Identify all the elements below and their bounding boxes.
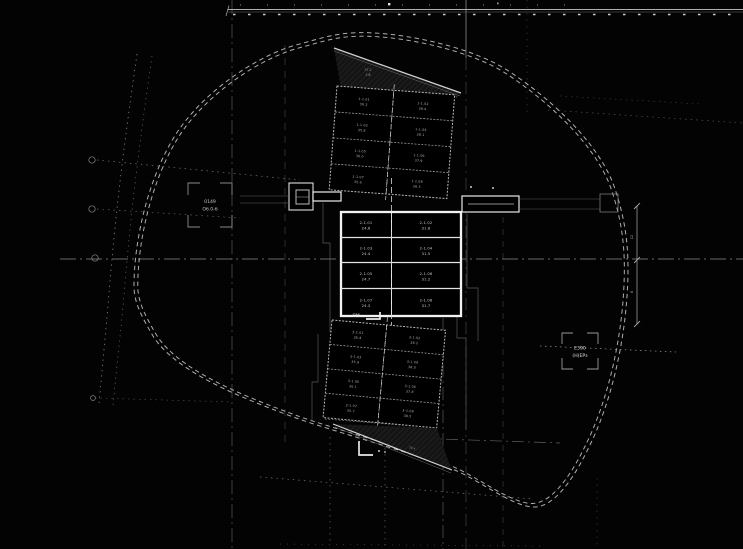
ramp-area-label: 37.2 xyxy=(364,68,371,72)
room-label: 35.7 xyxy=(347,409,355,414)
room-label: 24.6 xyxy=(362,226,371,230)
room-label: 1-1.03 xyxy=(356,123,368,128)
room-label: 37.9 xyxy=(415,158,423,163)
grid-bubble xyxy=(89,157,95,163)
room-label: 31.8 xyxy=(422,226,431,230)
room-label: 36.2 xyxy=(360,102,368,107)
room-label: 36.4 xyxy=(353,335,361,340)
room-label: 2-1.01 xyxy=(360,221,373,225)
room-label: 38.4 xyxy=(418,107,426,112)
upper-parking-block: 1-1.0136.21-1.0238.41-1.0335.81-1.0438.1… xyxy=(329,80,455,205)
room-label: 1-1.06 xyxy=(413,153,425,158)
room-label: 2-1.02 xyxy=(420,221,433,225)
room-label: 1-1.04 xyxy=(415,127,427,132)
lower-parking-block: 3-1.0136.43-1.0238.23-1.0335.93-1.0438.0… xyxy=(323,312,447,434)
room-label: 1-1.08 xyxy=(411,179,423,184)
site-plan-drawing: 12 8 0149 Об.0-б Е390 (Н)ЕРз 37.2 1:8 xyxy=(0,0,743,549)
room-label: 2-1.05 xyxy=(360,272,373,276)
top-dimension-strip xyxy=(226,3,743,17)
room-label: 38.5 xyxy=(403,414,411,419)
view-marker-left: 0149 Об.0-б xyxy=(188,183,232,227)
view-marker-text: Об.0-б xyxy=(202,207,217,213)
view-marker-text: 0149 xyxy=(204,199,216,205)
dimension-line-right: 12 8 xyxy=(630,203,640,327)
room-label: 2-1.06 xyxy=(420,272,433,276)
room-label: 36.1 xyxy=(349,384,357,389)
dimension-text-speck xyxy=(497,3,499,5)
room-label: 2-1.07 xyxy=(360,299,373,303)
view-marker-text: Е390 xyxy=(574,346,586,352)
room-label: 24.3 xyxy=(362,304,371,308)
grid-bubble xyxy=(89,206,95,212)
grid-bubble xyxy=(91,396,96,401)
dimension-value: 12 xyxy=(630,235,634,239)
room-label: 31.5 xyxy=(422,252,431,256)
link-corridor-west xyxy=(313,192,341,201)
room-label: 38.3 xyxy=(413,184,421,189)
view-marker-right: Е390 (Н)ЕРз xyxy=(562,333,598,369)
room-label: 35.8 xyxy=(358,128,366,133)
room-label: 1-1.05 xyxy=(354,149,366,154)
om-label: ОМ xyxy=(352,313,359,319)
room-label: 35.6 xyxy=(354,180,362,185)
room-label: 1-1.07 xyxy=(352,175,364,180)
room-label: 38.1 xyxy=(416,133,424,138)
room-label: 38.2 xyxy=(410,341,418,346)
room-label: 31.7 xyxy=(422,304,431,308)
room-label: 24.4 xyxy=(362,252,371,256)
room-label: 2-1.08 xyxy=(420,299,433,303)
room-label: 36.0 xyxy=(356,154,364,159)
room-label: 1-1.02 xyxy=(417,101,429,106)
room-label: 1-1.01 xyxy=(358,97,370,102)
room-label: 35.9 xyxy=(351,360,359,365)
room-label: 2-1.04 xyxy=(420,247,433,251)
cad-canvas: 12 8 0149 Об.0-б Е390 (Н)ЕРз 37.2 1:8 xyxy=(0,0,743,549)
grid-bubble-markers xyxy=(89,157,98,401)
view-marker-text: (Н)ЕРз xyxy=(572,353,588,359)
grid-bubble xyxy=(92,255,98,261)
corridor-east xyxy=(462,186,618,212)
dimension-text-speck xyxy=(388,3,390,5)
room-label: 2-1.03 xyxy=(360,247,373,251)
room-label: 24.7 xyxy=(362,277,371,281)
stair-core-west xyxy=(240,183,341,210)
room-label: 31.2 xyxy=(422,277,431,281)
room-label: 37.8 xyxy=(406,389,414,394)
room-label: 38.0 xyxy=(408,365,416,370)
ramp-slope-label: 1:8 xyxy=(365,73,370,77)
dimension-value: 8 xyxy=(630,291,634,293)
